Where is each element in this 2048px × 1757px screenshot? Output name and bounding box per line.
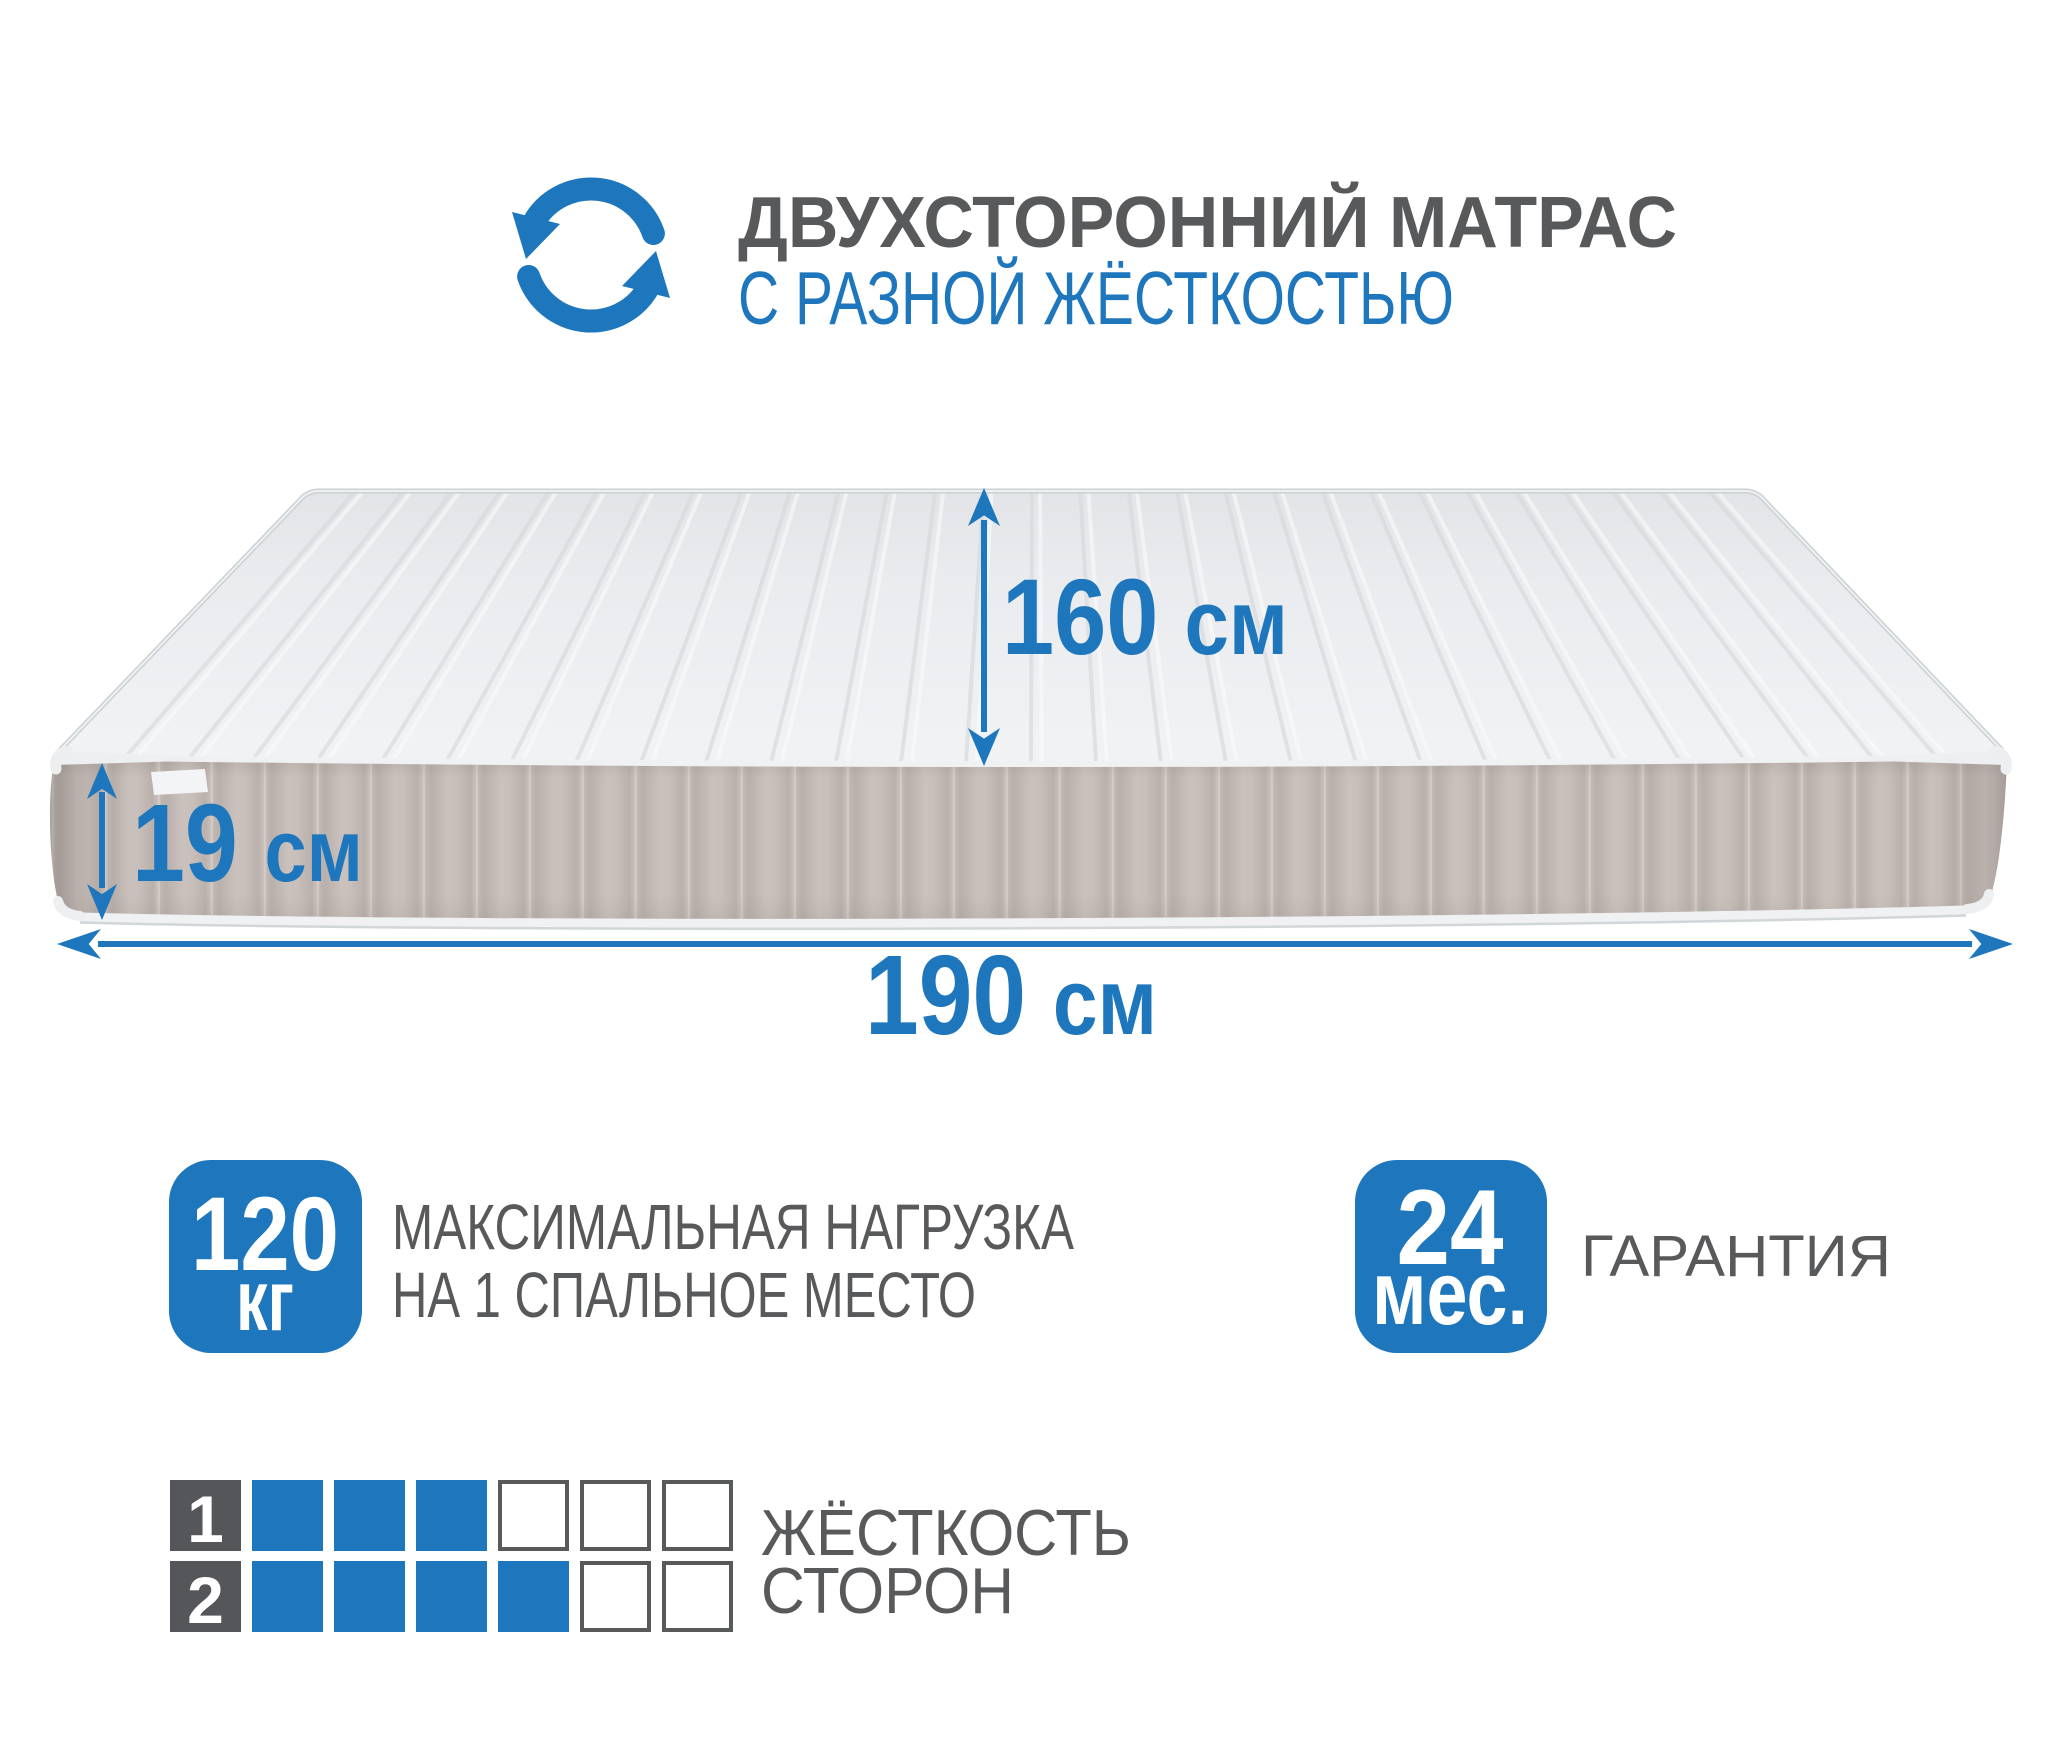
- svg-text:НА 1 СПАЛЬНОЕ МЕСТО: НА 1 СПАЛЬНОЕ МЕСТО: [392, 1259, 976, 1331]
- svg-text:1: 1: [187, 1482, 224, 1556]
- svg-text:ГАРАНТИЯ: ГАРАНТИЯ: [1581, 1224, 1891, 1289]
- svg-text:СТОРОН: СТОРОН: [761, 1554, 1014, 1627]
- svg-text:160 см: 160 см: [1002, 556, 1288, 677]
- svg-text:мес.: мес.: [1372, 1244, 1528, 1344]
- svg-text:190 см: 190 см: [865, 932, 1157, 1058]
- svg-text:2: 2: [187, 1563, 224, 1637]
- svg-text:кг: кг: [236, 1253, 294, 1349]
- svg-text:МАКСИМАЛЬНАЯ НАГРУЗКА: МАКСИМАЛЬНАЯ НАГРУЗКА: [392, 1191, 1074, 1263]
- svg-text:С РАЗНОЙ ЖЁСТКОСТЬЮ: С РАЗНОЙ ЖЁСТКОСТЬЮ: [738, 256, 1454, 340]
- svg-text:ДВУХСТОРОННИЙ МАТРАС: ДВУХСТОРОННИЙ МАТРАС: [738, 181, 1677, 263]
- svg-text:19 см: 19 см: [132, 782, 363, 905]
